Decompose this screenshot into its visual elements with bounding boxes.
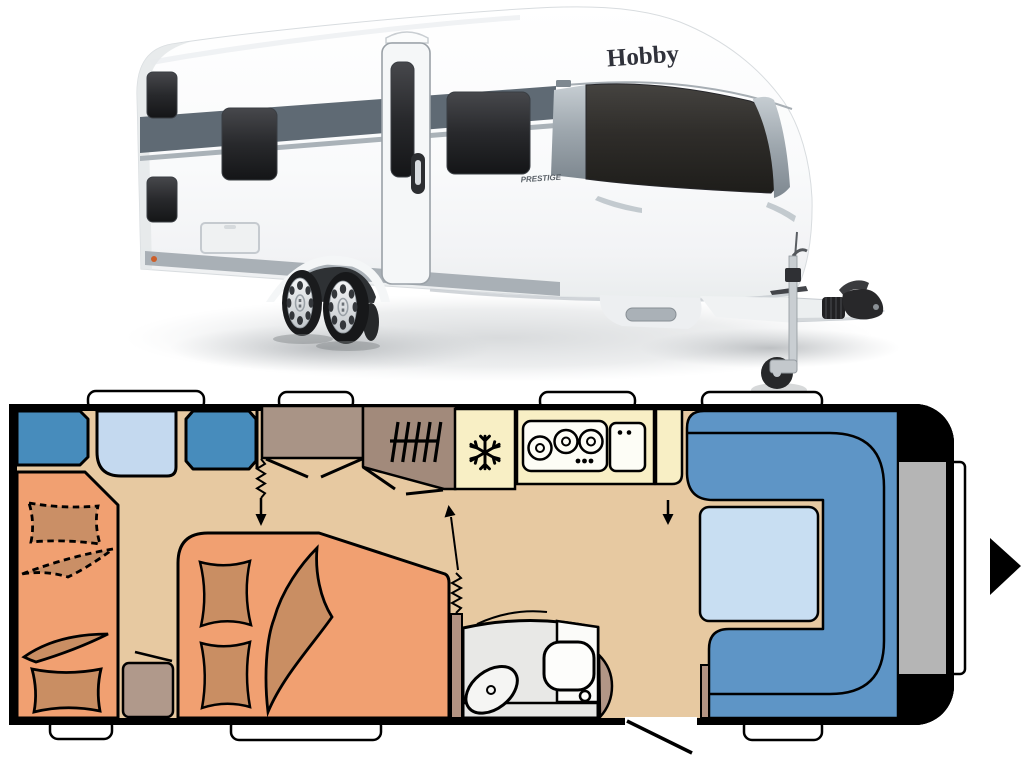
svg-text:Hobby: Hobby [606,40,680,72]
